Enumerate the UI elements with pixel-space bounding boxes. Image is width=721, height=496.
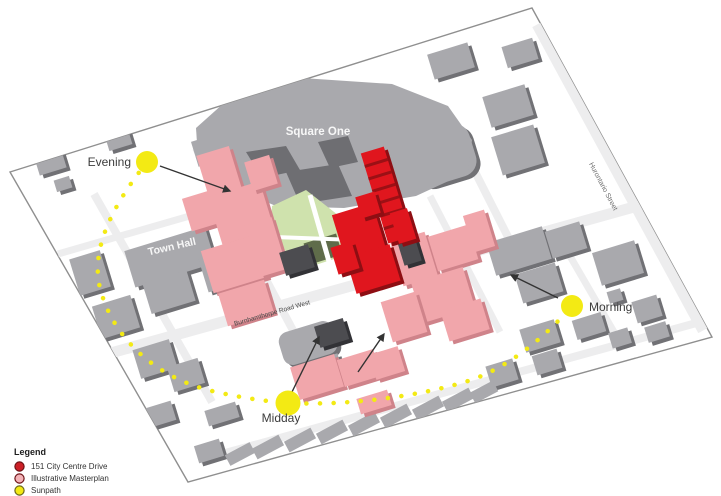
sunpath-map: Burnhamthorpe Road West Hurontario Stree… (0, 0, 721, 496)
legend-swatch-pink-icon (14, 473, 25, 484)
legend: Legend 151 City Centre Drive Illustrativ… (14, 447, 109, 496)
site-plan-svg: Burnhamthorpe Road West Hurontario Stree… (0, 0, 721, 496)
legend-title: Legend (14, 447, 109, 457)
legend-swatch-red-icon (14, 461, 25, 472)
legend-item-masterplan: Illustrative Masterplan (14, 472, 109, 484)
legend-swatch-yellow-icon (14, 485, 25, 496)
square-one-label: Square One (286, 126, 351, 138)
midday-label: Midday (262, 411, 301, 425)
evening-label: Evening (88, 155, 131, 169)
legend-item-label: Sunpath (31, 486, 61, 495)
morning-label: Morning (589, 300, 632, 314)
legend-item-sunpath: Sunpath (14, 484, 109, 496)
sun-marker-morning (561, 295, 583, 317)
legend-item-label: Illustrative Masterplan (31, 474, 109, 483)
legend-item-label: 151 City Centre Drive (31, 462, 107, 471)
legend-item-site: 151 City Centre Drive (14, 460, 109, 472)
sun-marker-evening (136, 151, 158, 173)
